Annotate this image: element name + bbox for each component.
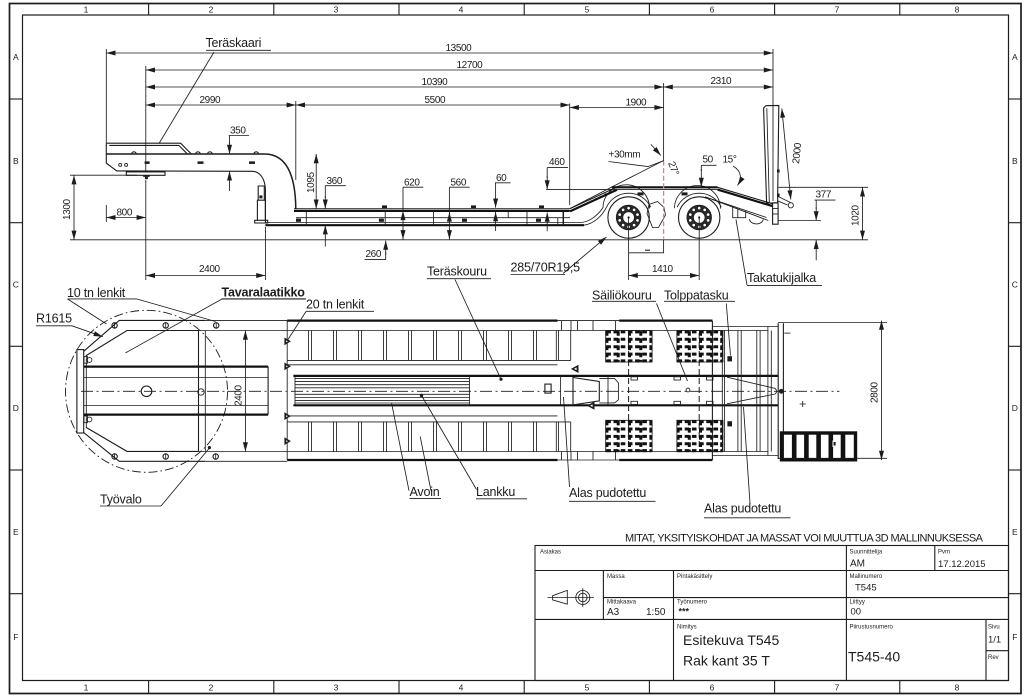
svg-text:10390: 10390 <box>422 77 449 88</box>
svg-text:Takatukijalka: Takatukijalka <box>747 271 816 285</box>
svg-text:2310: 2310 <box>711 76 732 87</box>
svg-text:R1615: R1615 <box>36 312 72 326</box>
svg-text:260: 260 <box>366 249 382 260</box>
svg-text:6: 6 <box>710 683 715 693</box>
svg-text:T545-40: T545-40 <box>848 649 900 665</box>
svg-text:F: F <box>1012 632 1017 642</box>
svg-text:60: 60 <box>496 173 507 184</box>
svg-text:Massa: Massa <box>607 574 625 580</box>
svg-text:E: E <box>1012 527 1018 537</box>
svg-text:Alas pudotettu: Alas pudotettu <box>569 486 646 500</box>
svg-text:15°: 15° <box>723 155 737 166</box>
svg-text:7: 7 <box>835 683 840 693</box>
svg-text:+30mm: +30mm <box>609 150 641 161</box>
svg-text:Pintakäsittely: Pintakäsittely <box>677 574 712 580</box>
svg-text:Sivu: Sivu <box>988 625 1000 631</box>
svg-text:1300: 1300 <box>62 199 73 220</box>
svg-text:Pvm: Pvm <box>938 550 950 556</box>
svg-text:***: *** <box>679 607 690 617</box>
svg-text:D: D <box>1012 403 1018 413</box>
svg-text:1: 1 <box>84 5 89 15</box>
svg-text:5: 5 <box>585 683 590 693</box>
svg-text:Asiakas: Asiakas <box>540 550 561 556</box>
svg-text:Lankku: Lankku <box>476 485 515 499</box>
svg-text:1095: 1095 <box>306 172 317 193</box>
svg-text:800: 800 <box>117 208 133 219</box>
svg-text:B: B <box>13 156 19 166</box>
svg-text:AM: AM <box>850 559 865 570</box>
svg-text:D: D <box>13 403 19 413</box>
svg-text:Tolppatasku: Tolppatasku <box>664 289 729 303</box>
svg-text:17.12.2015: 17.12.2015 <box>938 559 986 570</box>
svg-text:4: 4 <box>459 5 464 15</box>
svg-text:13500: 13500 <box>446 43 473 54</box>
svg-text:8: 8 <box>955 5 960 15</box>
svg-text:B: B <box>1012 156 1018 166</box>
svg-text:A: A <box>13 52 19 62</box>
svg-text:A3: A3 <box>607 607 620 618</box>
svg-text:1/1: 1/1 <box>988 635 1001 646</box>
svg-text:Piirustusnumero: Piirustusnumero <box>850 625 894 631</box>
svg-text:Esitekuva T545: Esitekuva T545 <box>683 632 779 648</box>
svg-text:3: 3 <box>334 683 339 693</box>
svg-text:Teräskaari: Teräskaari <box>206 36 262 50</box>
svg-text:Suunnittelija: Suunnittelija <box>850 550 883 556</box>
svg-text:1900: 1900 <box>626 98 647 109</box>
svg-text:MITAT, YKSITYISKOHDAT JA MASSA: MITAT, YKSITYISKOHDAT JA MASSAT VOI MUUT… <box>625 533 984 545</box>
svg-text:8: 8 <box>955 683 960 693</box>
svg-text:Rev: Rev <box>988 655 999 661</box>
svg-text:Rak kant 35 T: Rak kant 35 T <box>683 653 770 669</box>
svg-text:1: 1 <box>84 683 89 693</box>
svg-text:4: 4 <box>459 683 464 693</box>
svg-text:20 tn lenkit: 20 tn lenkit <box>306 298 365 312</box>
svg-text:Työvalo: Työvalo <box>100 493 142 507</box>
svg-text:2400: 2400 <box>234 385 245 406</box>
svg-text:Mallinumero: Mallinumero <box>850 574 883 580</box>
svg-text:2: 2 <box>209 5 214 15</box>
svg-text:Avoin: Avoin <box>410 485 440 499</box>
svg-text:Mittakaava: Mittakaava <box>607 600 637 606</box>
svg-text:2: 2 <box>209 683 214 693</box>
svg-text:2990: 2990 <box>200 95 221 106</box>
svg-text:2400: 2400 <box>199 264 220 275</box>
svg-text:T545: T545 <box>855 583 877 594</box>
svg-text:7: 7 <box>835 5 840 15</box>
svg-text:5500: 5500 <box>425 95 446 106</box>
svg-text:50: 50 <box>703 155 714 166</box>
svg-text:Nimitys: Nimitys <box>677 625 697 631</box>
svg-text:1:50: 1:50 <box>646 607 666 618</box>
svg-text:377: 377 <box>816 190 832 201</box>
svg-text:3: 3 <box>334 5 339 15</box>
svg-text:460: 460 <box>549 157 565 168</box>
svg-text:350: 350 <box>230 126 246 137</box>
svg-text:2000: 2000 <box>791 142 804 165</box>
svg-text:F: F <box>13 632 18 642</box>
svg-text:Tavaralaatikko: Tavaralaatikko <box>222 286 306 300</box>
svg-text:2800: 2800 <box>870 382 881 403</box>
svg-text:Työnumero: Työnumero <box>677 600 708 606</box>
svg-text:C: C <box>13 280 19 290</box>
svg-text:1020: 1020 <box>851 205 862 226</box>
svg-text:Teräskouru: Teräskouru <box>427 265 487 279</box>
svg-text:E: E <box>13 527 19 537</box>
svg-text:Alas pudotettu: Alas pudotettu <box>704 502 781 516</box>
svg-text:12700: 12700 <box>457 60 484 71</box>
svg-text:10 tn lenkit: 10 tn lenkit <box>67 286 126 300</box>
svg-text:6: 6 <box>710 5 715 15</box>
svg-text:00: 00 <box>851 607 862 618</box>
svg-text:Säiliökouru: Säiliökouru <box>592 289 652 303</box>
svg-text:C: C <box>1012 280 1018 290</box>
svg-text:5: 5 <box>585 5 590 15</box>
svg-text:1410: 1410 <box>652 264 673 275</box>
svg-text:A: A <box>1012 52 1018 62</box>
svg-text:Liittyy: Liittyy <box>850 600 865 606</box>
